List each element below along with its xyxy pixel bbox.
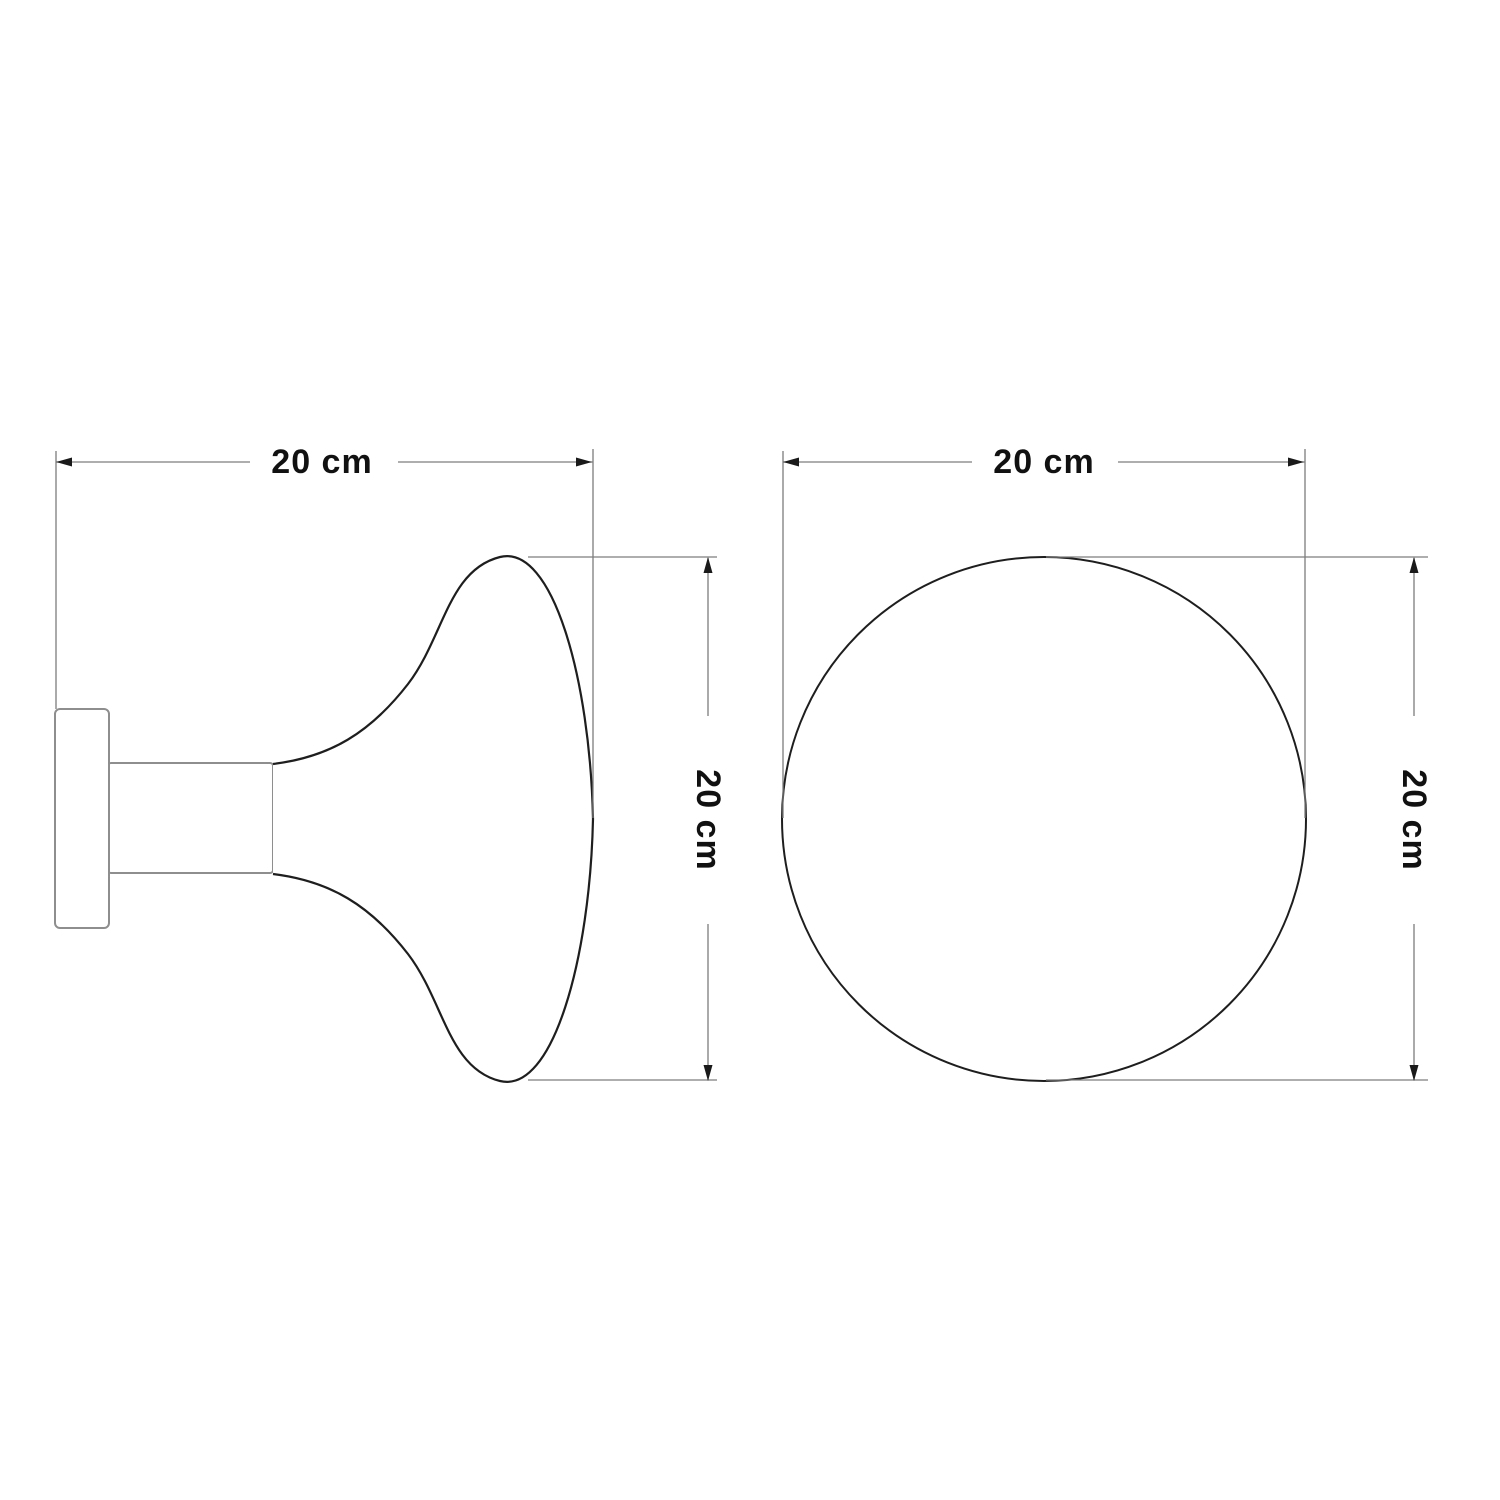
technical-drawing-canvas: 20 cm 20 cm 20 cm	[0, 0, 1500, 1500]
arrowhead-down-icon	[1410, 1065, 1419, 1081]
front-view-height-label: 20 cm	[1395, 769, 1433, 870]
arrowhead-right-icon	[576, 458, 592, 467]
arrowhead-right-icon	[1288, 458, 1304, 467]
mounting-plate	[55, 709, 109, 928]
arrowhead-left-icon	[56, 458, 72, 467]
side-view: 20 cm 20 cm	[55, 443, 727, 1082]
knob-profile-outline	[273, 556, 593, 1082]
knob-stem	[108, 763, 273, 873]
arrowhead-up-icon	[704, 557, 713, 573]
arrowhead-up-icon	[1410, 557, 1419, 573]
front-view: 20 cm 20 cm	[782, 443, 1433, 1081]
front-view-width-label: 20 cm	[993, 443, 1094, 481]
arrowhead-down-icon	[704, 1065, 713, 1081]
knob-face-outline	[782, 557, 1306, 1081]
side-view-height-label: 20 cm	[689, 769, 727, 870]
side-view-width-label: 20 cm	[271, 443, 372, 481]
drawing-sheet: 20 cm 20 cm 20 cm	[0, 0, 1500, 1500]
arrowhead-left-icon	[783, 458, 799, 467]
